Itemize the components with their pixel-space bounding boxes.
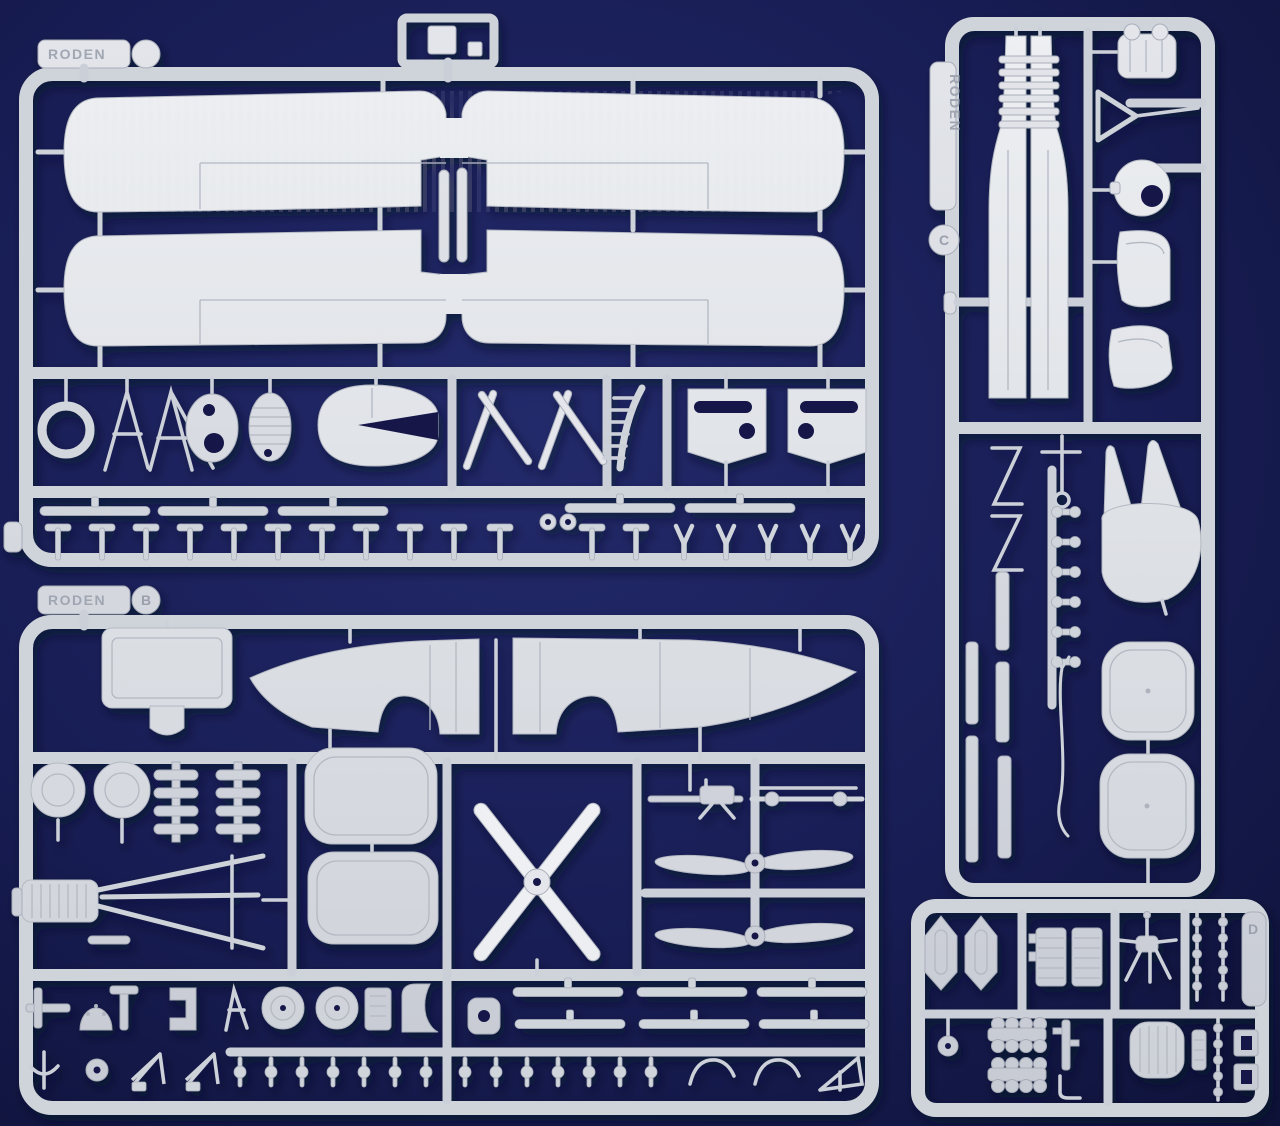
brand-embossed-text: RODEN bbox=[48, 592, 106, 608]
inline-engine-block bbox=[12, 880, 98, 922]
sprue-d-tag: D bbox=[1242, 912, 1266, 1006]
center-strut-part bbox=[457, 168, 467, 262]
cylinder-bank-comb bbox=[988, 1058, 1047, 1093]
small-bar-part bbox=[88, 936, 130, 944]
cylinder-bank-comb bbox=[988, 1018, 1047, 1053]
small-block-part bbox=[468, 42, 482, 56]
tailplane-half bbox=[1102, 642, 1194, 740]
sprue-letter-badge bbox=[132, 40, 160, 68]
fuel-tank-panel bbox=[308, 844, 438, 944]
beaded-axle-rod bbox=[1193, 912, 1202, 1000]
sprue-letter-text: B bbox=[141, 592, 151, 608]
wingtip-panel bbox=[1109, 326, 1172, 389]
mounting-bracket bbox=[1234, 1064, 1258, 1090]
fuel-tank-panel bbox=[305, 748, 437, 844]
center-strut-part bbox=[439, 170, 449, 262]
beaded-axle-rod bbox=[1219, 912, 1228, 1000]
sprue-photo-canvas: RODEN bbox=[0, 0, 1280, 1126]
small-plate-part bbox=[428, 26, 456, 54]
frame-tab bbox=[4, 522, 22, 552]
ribbed-fuel-tank bbox=[1130, 1022, 1206, 1078]
model-kit-photo: RODEN bbox=[0, 0, 1280, 1126]
brand-embossed-text: RODEN bbox=[48, 46, 106, 62]
brand-embossed-text: RODEN bbox=[947, 74, 963, 132]
ribbed-radiator-core bbox=[1072, 928, 1102, 986]
mounting-bracket bbox=[1234, 1030, 1258, 1056]
sprue-letter-text: D bbox=[1248, 921, 1258, 937]
sprue-letter-text: C bbox=[939, 232, 949, 248]
